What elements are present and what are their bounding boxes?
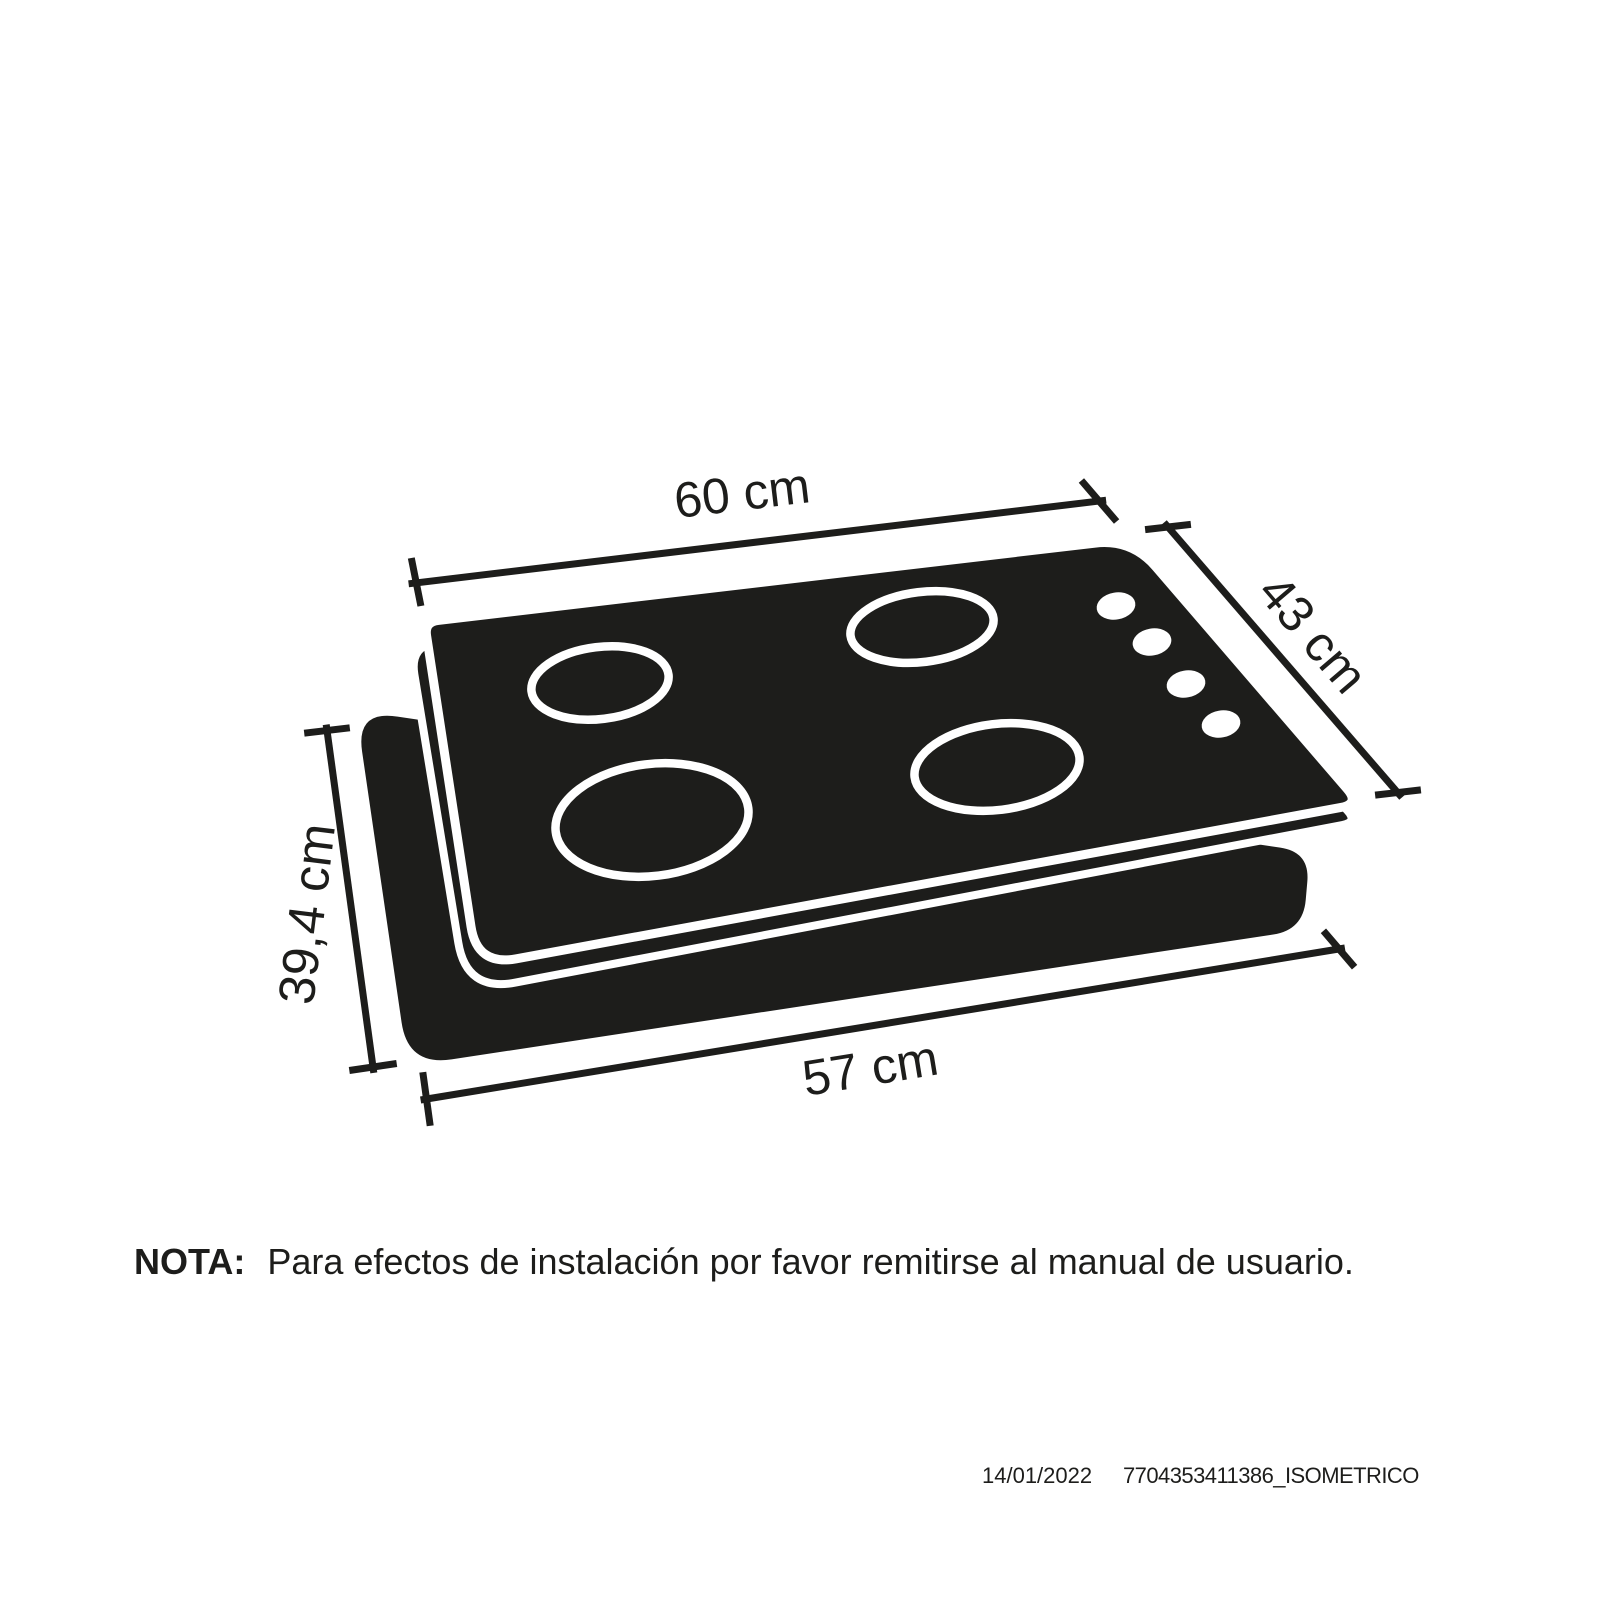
svg-text:14/01/2022: 14/01/2022 [982,1463,1092,1488]
svg-text:NOTA: Para efectos de instalac: NOTA: Para efectos de instalación por fa… [134,1241,1354,1282]
svg-text:7704353411386_ISOMETRICO: 7704353411386_ISOMETRICO [1123,1463,1419,1488]
